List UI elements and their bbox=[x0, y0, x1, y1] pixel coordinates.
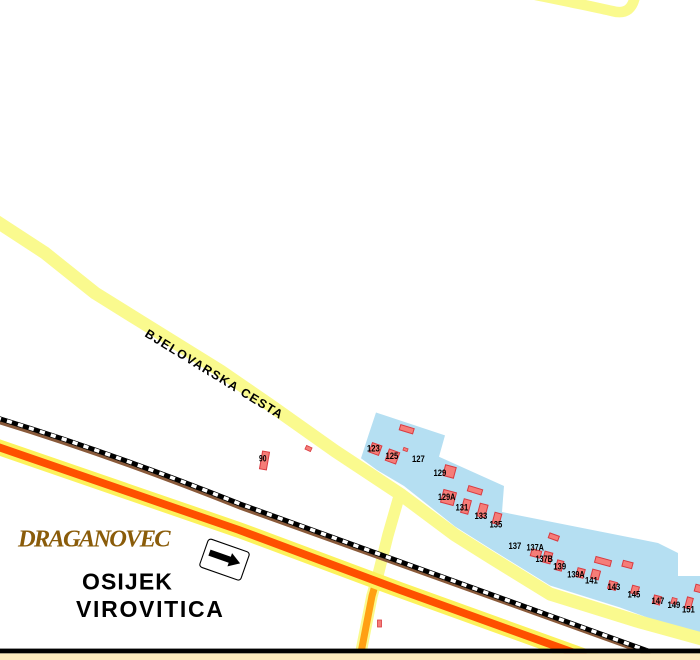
svg-text:131: 131 bbox=[456, 502, 469, 513]
svg-text:137B: 137B bbox=[536, 554, 554, 565]
svg-text:129A: 129A bbox=[438, 492, 456, 503]
svg-text:133: 133 bbox=[475, 511, 488, 522]
svg-text:127: 127 bbox=[412, 454, 425, 465]
svg-text:149: 149 bbox=[668, 600, 681, 611]
svg-text:135: 135 bbox=[490, 520, 503, 531]
svg-text:151: 151 bbox=[682, 605, 695, 616]
svg-text:VIROVITICA: VIROVITICA bbox=[76, 596, 225, 622]
svg-text:143: 143 bbox=[608, 582, 621, 593]
svg-text:145: 145 bbox=[628, 590, 641, 601]
svg-text:141: 141 bbox=[585, 575, 598, 586]
svg-text:139A: 139A bbox=[567, 569, 585, 580]
svg-text:OSIJEK: OSIJEK bbox=[82, 569, 173, 595]
svg-text:137A: 137A bbox=[527, 543, 545, 554]
svg-text:137: 137 bbox=[509, 541, 522, 552]
svg-text:90: 90 bbox=[259, 454, 267, 465]
svg-text:147: 147 bbox=[652, 596, 665, 607]
svg-text:125: 125 bbox=[386, 451, 399, 462]
svg-text:129: 129 bbox=[434, 468, 447, 479]
svg-text:DRAGANOVEC: DRAGANOVEC bbox=[17, 526, 171, 553]
svg-text:123: 123 bbox=[367, 444, 380, 455]
svg-text:139: 139 bbox=[553, 561, 566, 572]
